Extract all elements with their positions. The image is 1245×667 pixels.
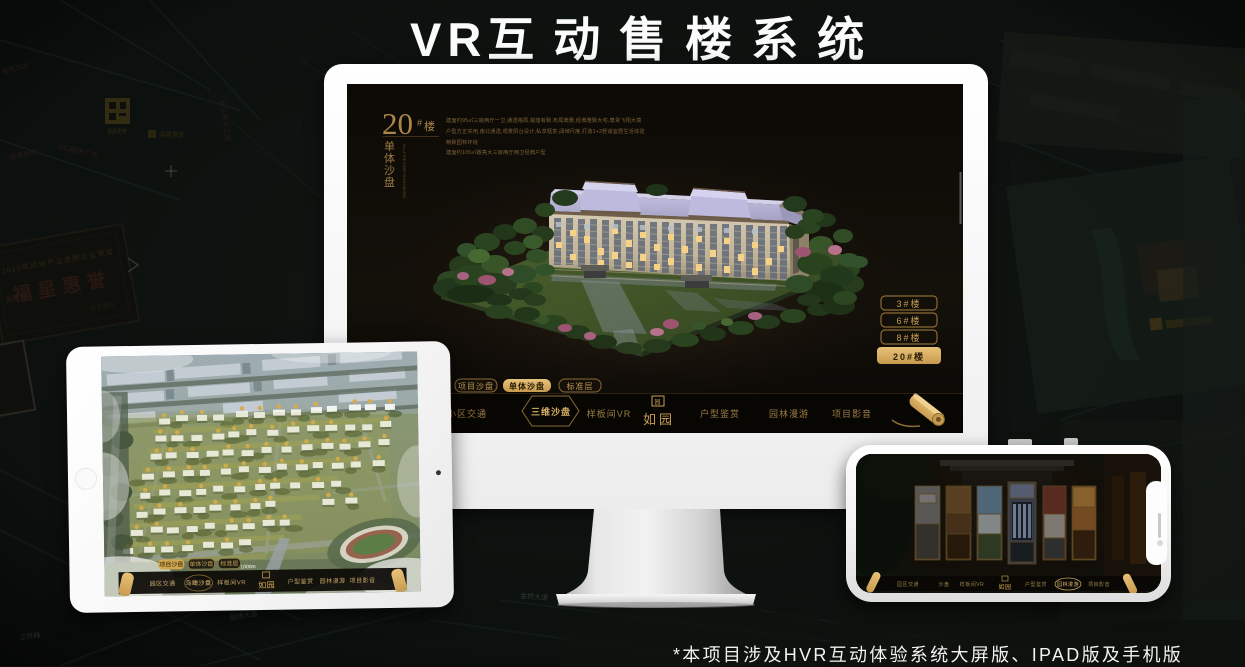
svg-text:楼: 楼: [424, 119, 435, 133]
svg-text:园区交通: 园区交通: [897, 581, 919, 588]
svg-text:户型鉴赏: 户型鉴赏: [700, 408, 740, 419]
svg-text:20#楼: 20#楼: [893, 351, 925, 362]
svg-text:沙盘: 沙盘: [938, 581, 949, 588]
svg-text:园林漫游: 园林漫游: [1057, 581, 1079, 588]
svg-text:小区交通: 小区交通: [447, 408, 487, 419]
svg-text:项目影音: 项目影音: [1088, 581, 1110, 588]
svg-text:单: 单: [384, 140, 395, 153]
svg-text:标准层: 标准层: [567, 381, 594, 391]
svg-text:6#楼: 6#楼: [896, 315, 921, 326]
svg-text:精致园林环绕: 精致园林环绕: [446, 138, 478, 146]
svg-text:园: 园: [654, 399, 661, 406]
svg-text:20: 20: [382, 106, 413, 141]
svg-text:体: 体: [384, 151, 395, 165]
svg-text:如园: 如园: [998, 583, 1011, 591]
svg-text:样板间VR: 样板间VR: [587, 408, 632, 419]
svg-text:如园: 如园: [258, 580, 275, 590]
svg-text:VILLA THE RIVER CLASS MODEL: VILLA THE RIVER CLASS MODEL: [402, 144, 406, 199]
svg-text:建面约95㎡三房两厅一卫,通透格局,错落有致,布局典雅,经典: 建面约95㎡三房两厅一卫,通透格局,错落有致,布局典雅,经典雅致大宅,尊贵飞翔大…: [446, 116, 642, 124]
svg-text:标准层: 标准层: [220, 559, 238, 567]
svg-text:三维沙盘: 三维沙盘: [531, 406, 571, 417]
svg-text:项目沙盘: 项目沙盘: [458, 381, 494, 391]
svg-text:单体沙盘: 单体沙盘: [509, 381, 545, 391]
svg-text:项目影音: 项目影音: [832, 408, 872, 419]
svg-text:1000m: 1000m: [240, 564, 255, 570]
svg-text:户型方正实用,南北通透,观景阳台设计,私享惬意,阔绰尺度,打: 户型方正实用,南北通透,观景阳台设计,私享惬意,阔绰尺度,打造1+2舒适宜居生活…: [446, 127, 645, 135]
svg-text:户型鉴赏: 户型鉴赏: [1025, 581, 1047, 588]
svg-text:沙: 沙: [384, 164, 395, 177]
svg-text:园林漫游: 园林漫游: [769, 408, 809, 419]
svg-text:如园: 如园: [643, 412, 675, 427]
svg-text:样板间VR: 样板间VR: [960, 581, 984, 588]
svg-text:#: #: [417, 118, 422, 128]
svg-text:盘: 盘: [384, 175, 395, 189]
svg-text:8#楼: 8#楼: [896, 332, 921, 343]
svg-text:建面约105㎡敞亮大三房两厅两卫经典户型: 建面约105㎡敞亮大三房两厅两卫经典户型: [446, 148, 546, 156]
svg-text:3#楼: 3#楼: [896, 298, 921, 309]
